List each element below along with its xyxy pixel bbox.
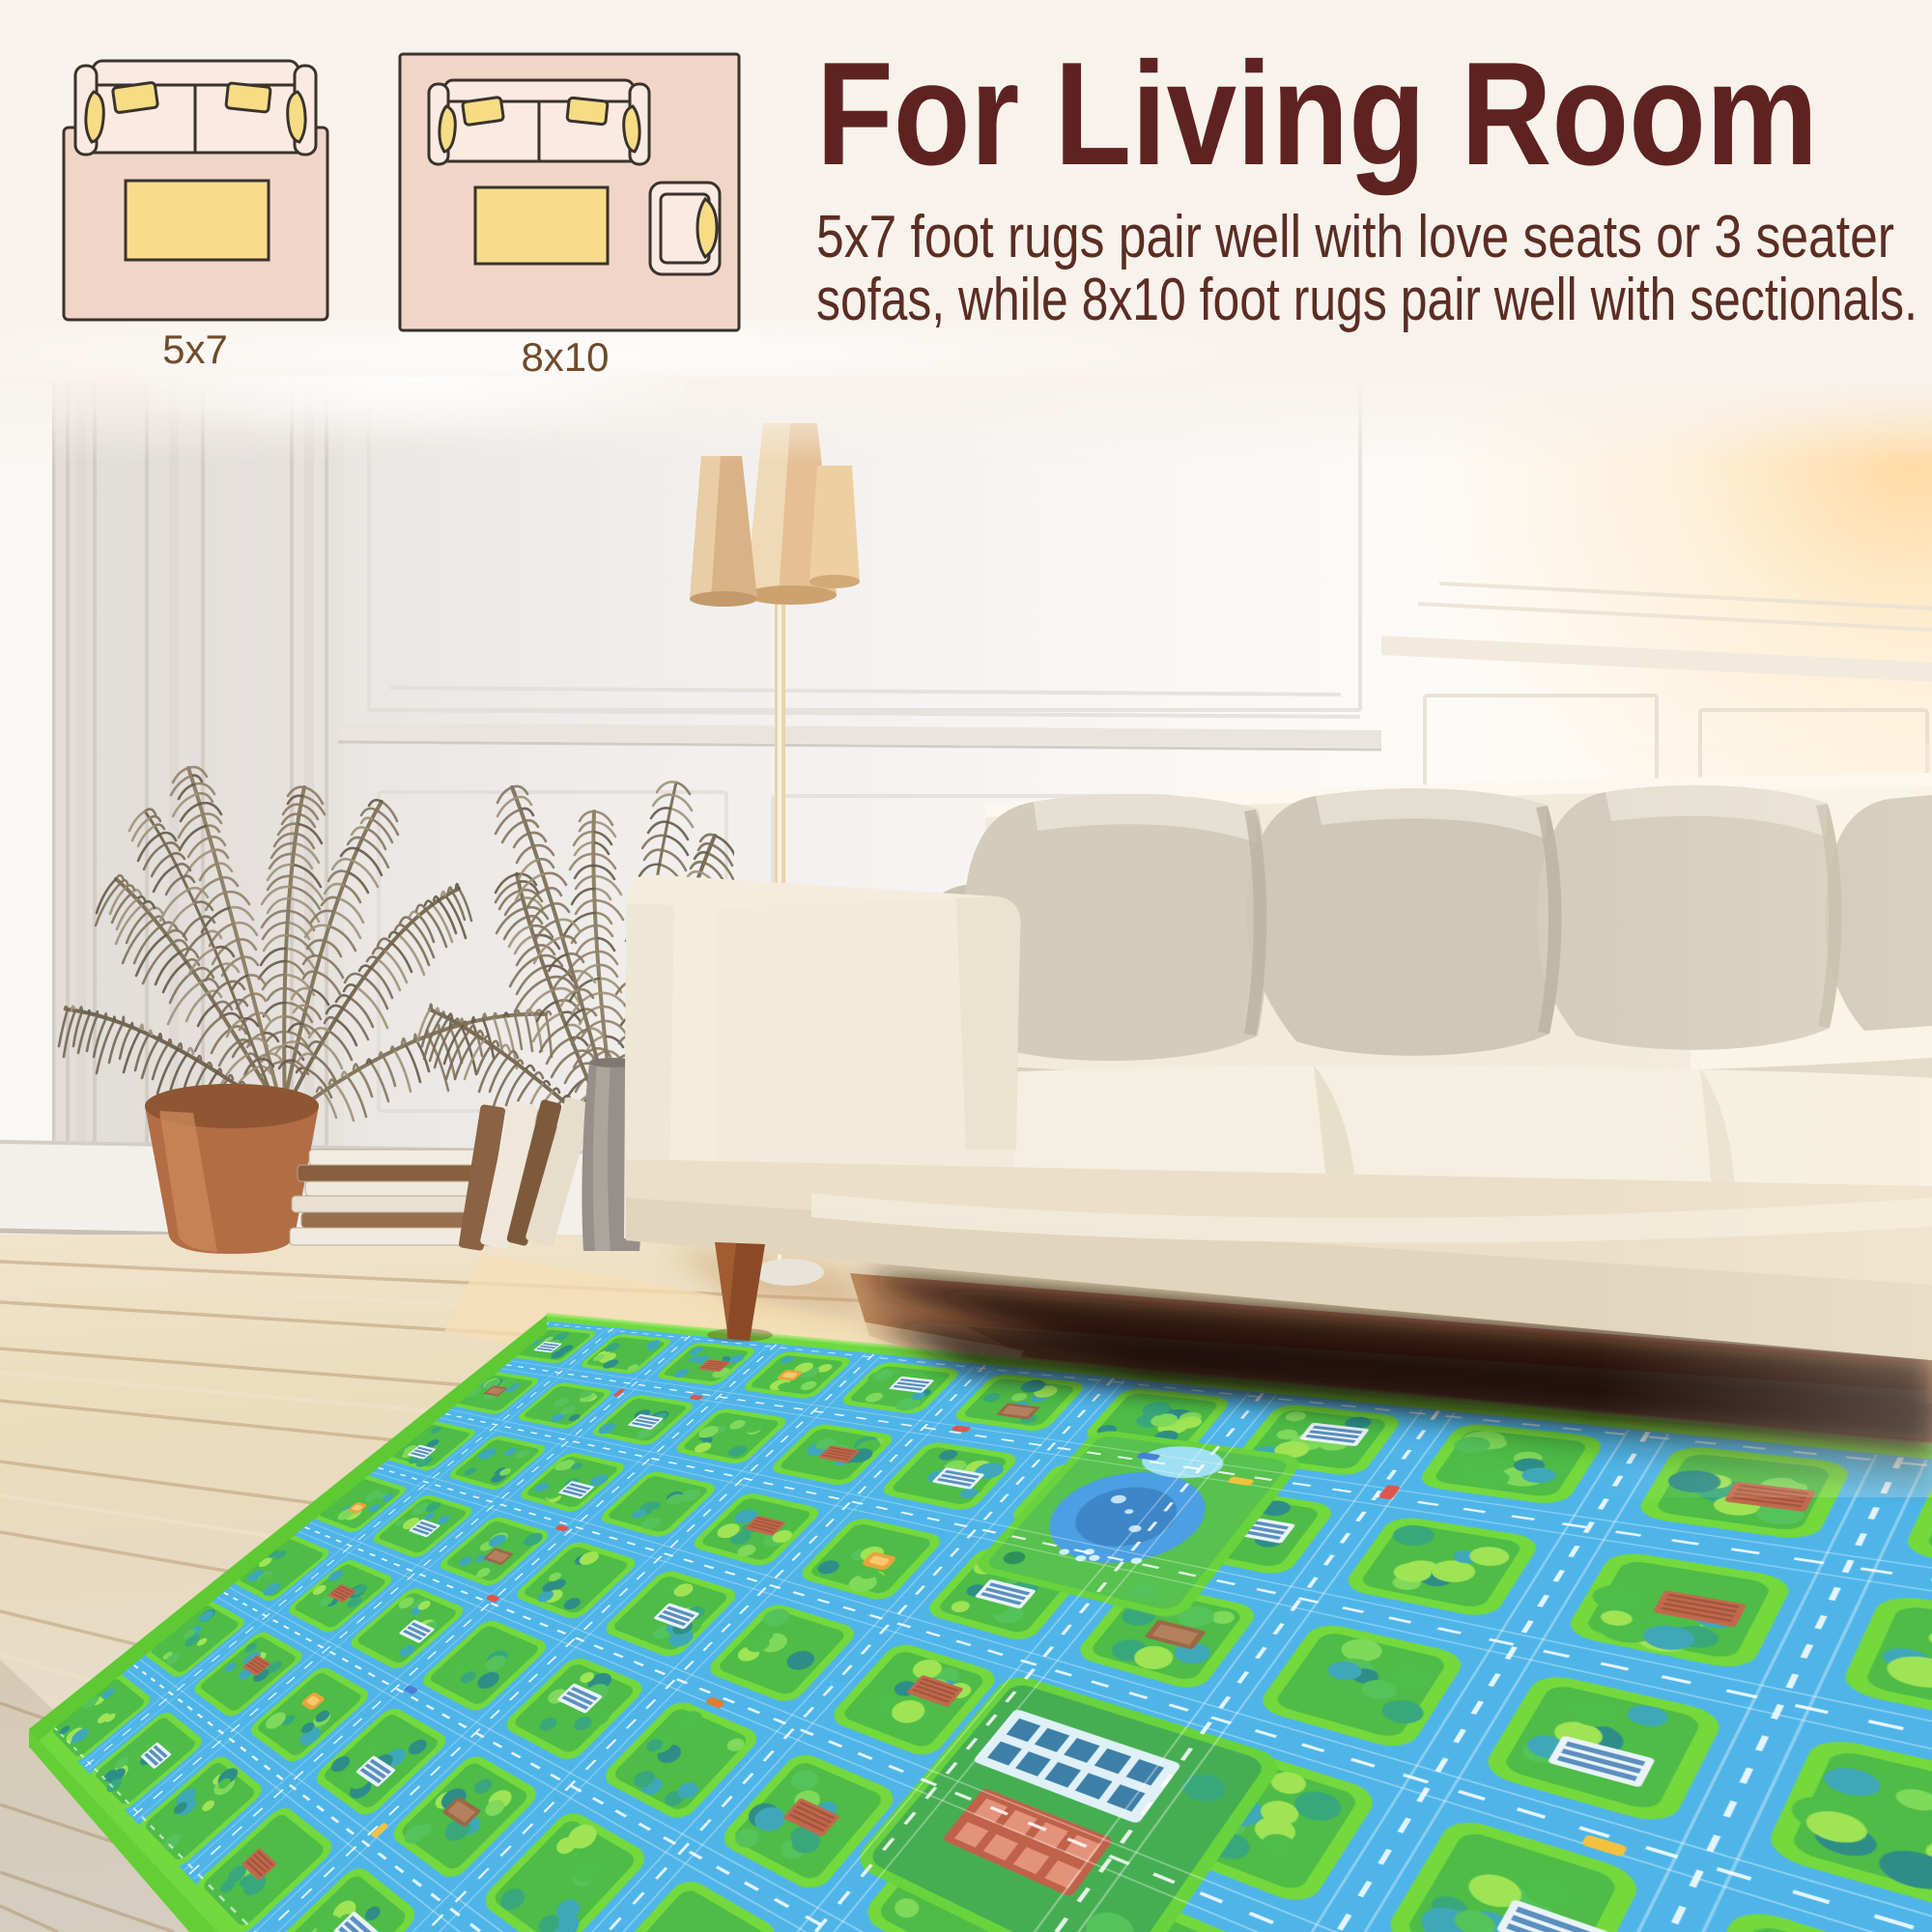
svg-text:sofas, while 8x10 foot rugs pa: sofas, while 8x10 foot rugs pair well wi… bbox=[816, 267, 1918, 333]
svg-text:5x7 foot rugs pair well with l: 5x7 foot rugs pair well with love seats … bbox=[816, 204, 1894, 270]
svg-text:For Living Room: For Living Room bbox=[816, 32, 1818, 196]
